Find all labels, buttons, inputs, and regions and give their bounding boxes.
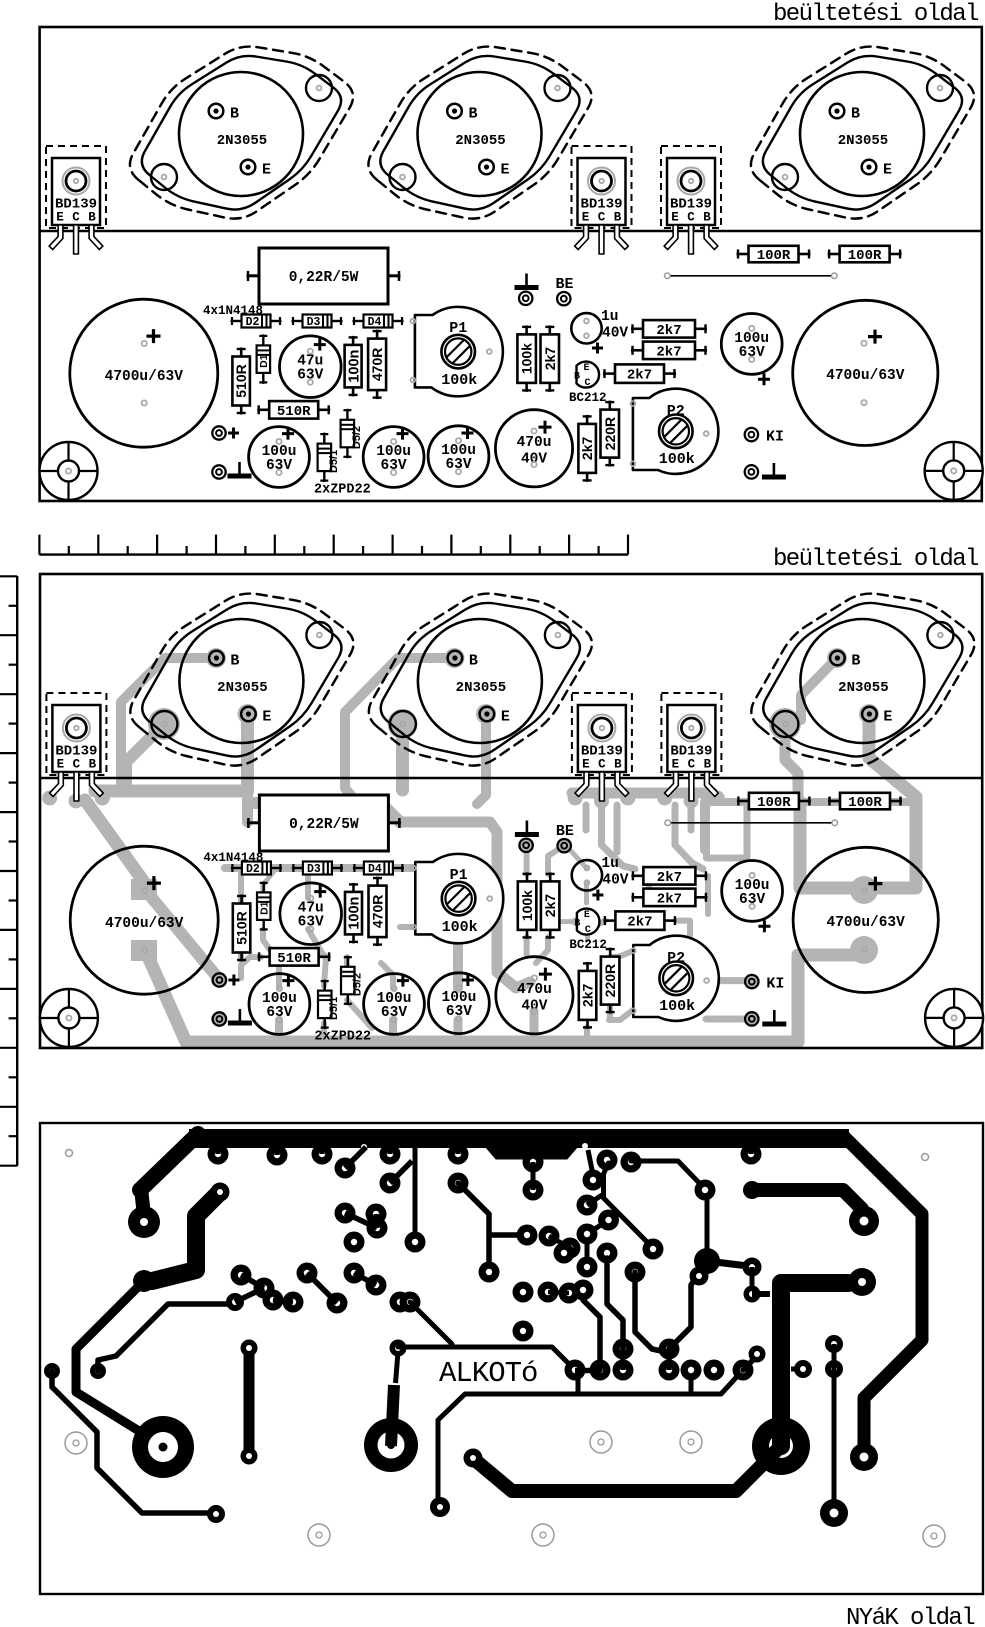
svg-text:beültetési oldal: beültetési oldal: [773, 1, 979, 28]
svg-text:NYáK oldal: NYáK oldal: [846, 1605, 975, 1627]
svg-text:ALKOTó: ALKOTó: [439, 1357, 537, 1390]
svg-text:beültetési oldal: beültetési oldal: [773, 546, 979, 573]
